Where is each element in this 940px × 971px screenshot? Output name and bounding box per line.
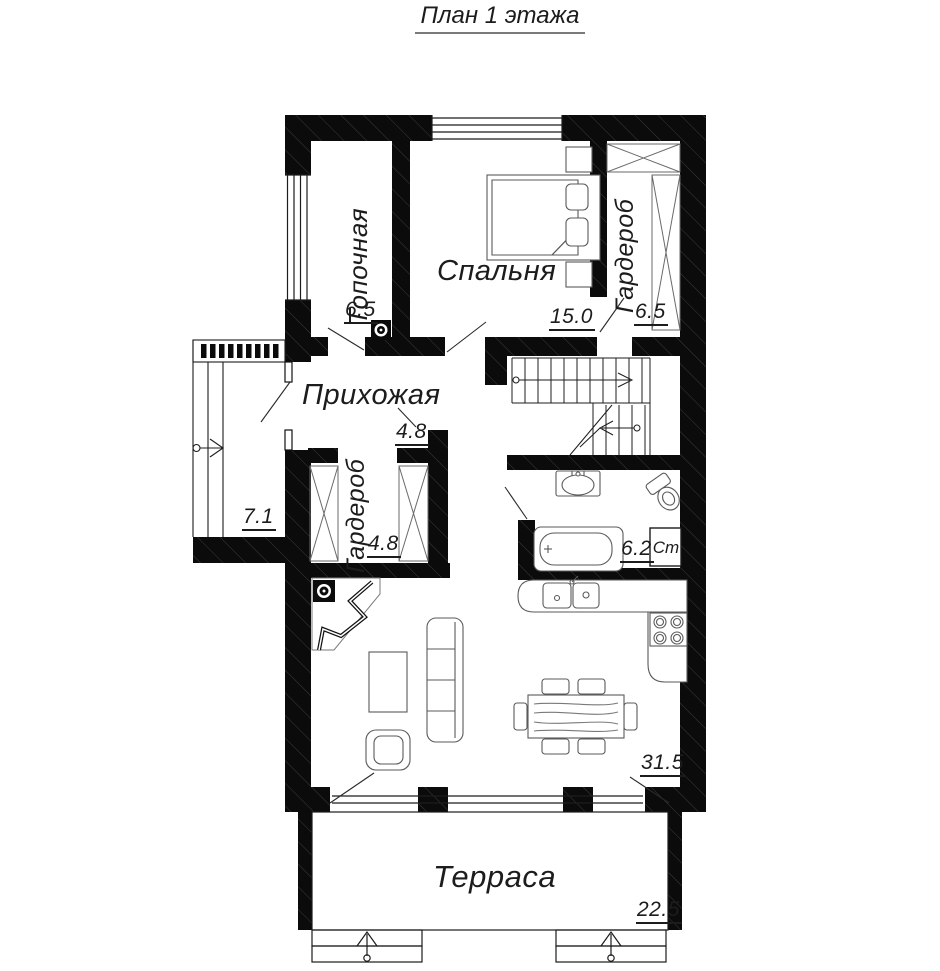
area-label-wardrobe-low: 4.8 [367,533,401,558]
room-label-wardrobe-top: Гардероб [613,199,638,313]
floor-plan-drawing [0,0,940,971]
pillow [566,184,588,210]
room-label-bedroom: Спальня [437,257,556,286]
chair [624,703,637,730]
chair [578,739,605,754]
area-label-bedroom: 15.0 [549,306,595,331]
area-label-terrace: 22.5 [636,899,682,924]
washbasin [556,471,600,496]
entrance-door [285,362,292,450]
bedroom-window [432,115,562,141]
bathtub [534,527,623,571]
chair [514,703,527,730]
living-room-furniture [366,618,637,770]
nightstand [566,147,592,172]
room-label-terrace: Терраса [433,861,556,892]
area-label-living: 31.5 [640,752,686,777]
chimney-flue [313,580,335,602]
terrace-glass-door [332,796,643,803]
mud-grate [201,344,279,358]
floor-plan: План 1 этажа Топочная 6.5 Спальня 15.0 Г… [0,0,940,971]
terrace-steps [312,930,666,962]
toilet [645,472,685,515]
room-label-hallway: Прихожая [302,381,441,410]
dining-table [514,679,637,754]
area-label-wardrobe-top: 6.5 [634,301,668,326]
area-label-boiler: 6.5 [344,299,378,324]
armchair [366,730,410,770]
chair [578,679,605,694]
chair [542,679,569,694]
area-label-bathroom: 6.2 [620,538,654,563]
boiler-window [285,175,311,300]
room-label-wardrobe-low: Гардероб [344,459,369,573]
washing-machine-label: Ст [650,538,682,558]
area-label-porch: 7.1 [242,506,276,531]
pillow [566,218,588,246]
coffee-table [369,652,407,712]
stove [650,613,687,646]
staircase [512,358,650,455]
page-title-text: План 1 этажа [415,2,586,34]
page-title: План 1 этажа [330,2,670,30]
fireplace [312,578,380,650]
chair [542,739,569,754]
sofa [427,618,463,742]
nightstand [566,262,592,287]
kitchen [518,576,687,682]
area-label-hallway: 4.8 [395,421,429,446]
